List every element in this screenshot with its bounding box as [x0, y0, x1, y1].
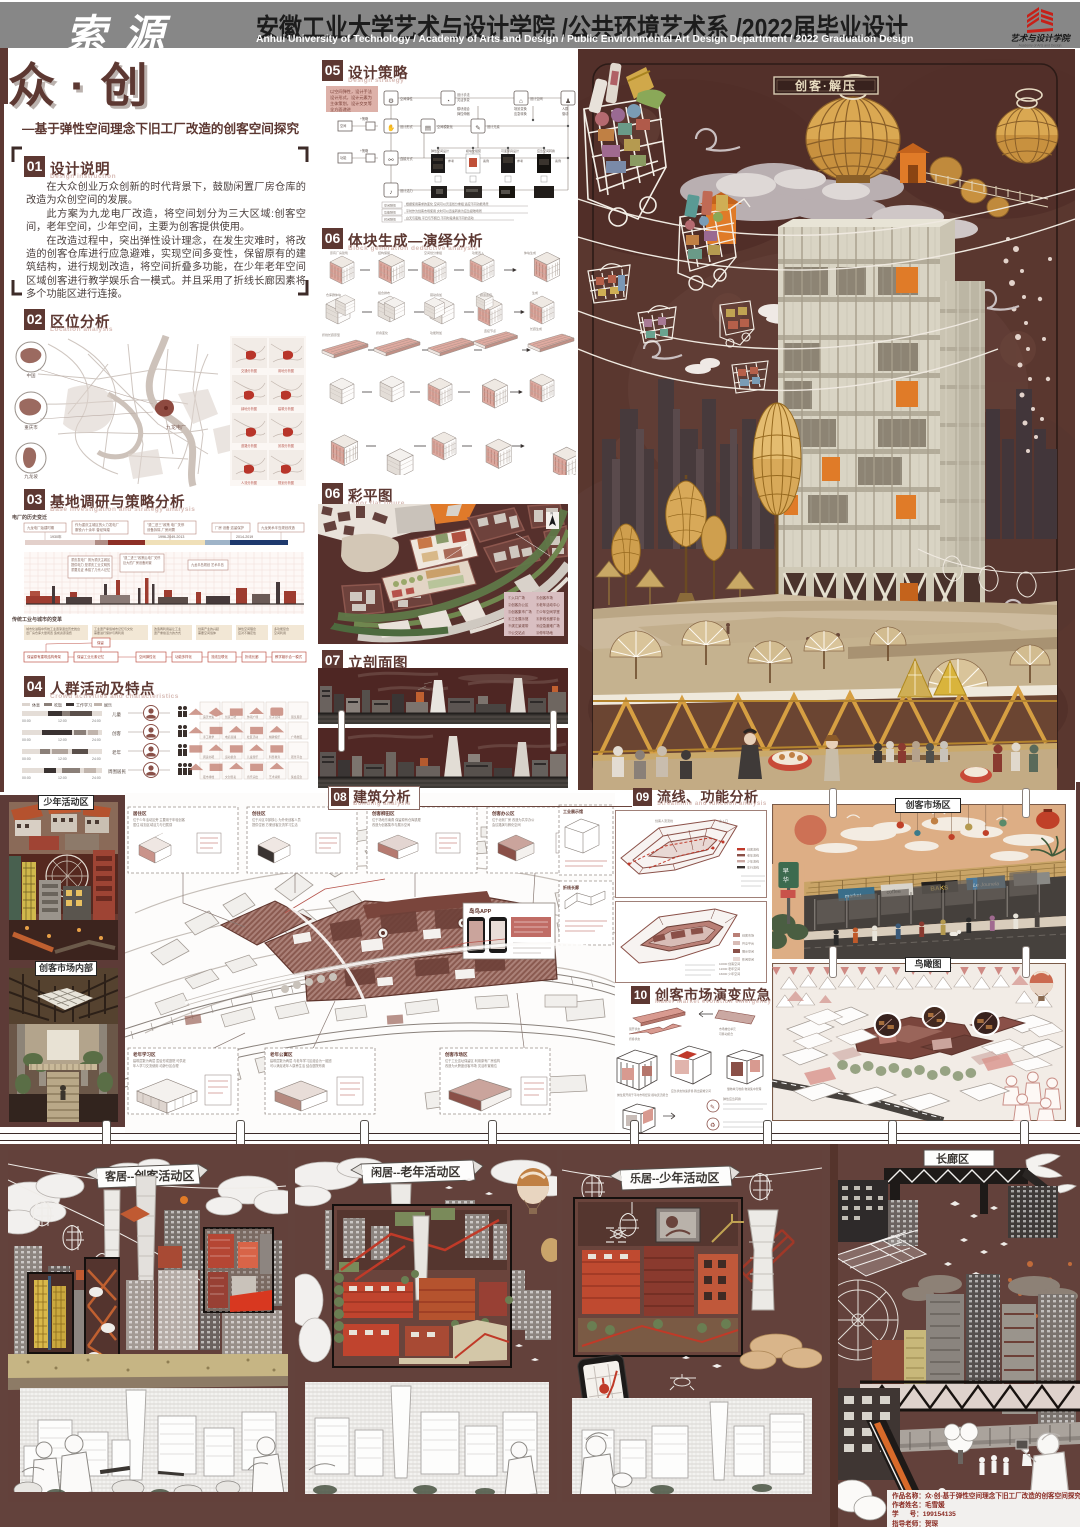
svg-text:艺术与设计学院: 艺术与设计学院 [1010, 33, 1071, 43]
svg-text:应急空间转换: 应急空间转换 [537, 148, 555, 153]
svg-text:休闲空间: 休闲空间 [742, 956, 754, 961]
svg-text:老年公寓区: 老年公寓区 [269, 1051, 293, 1058]
svg-text:空间弹性化: 空间弹性化 [139, 654, 157, 659]
svg-text:功能: 功能 [340, 155, 347, 160]
svg-text:吃饭: 吃饭 [54, 702, 62, 708]
svg-text:人流分析图: 人流分析图 [241, 480, 257, 485]
svg-text:主体策划，设计交叉等: 主体策划，设计交叉等 [330, 100, 372, 107]
svg-text:功能弹性: 功能弹性 [384, 210, 396, 215]
svg-text:需要进行保护与再利用: 需要进行保护与再利用 [94, 630, 124, 635]
svg-text:手工教学: 手工教学 [203, 735, 214, 739]
svg-text:生成: 生成 [532, 290, 538, 295]
svg-text:案例: 案例 [483, 158, 489, 163]
svg-text:露天市集: 露天市集 [203, 715, 214, 719]
svg-text:24:00: 24:00 [92, 738, 101, 742]
svg-text:16000 少年空间: 16000 少年空间 [719, 971, 740, 976]
svg-text:白天与夜晚 平日与节假日 不同时段承载不同的活动: 白天与夜晚 平日与节假日 不同时段承载不同的活动 [406, 215, 474, 220]
svg-text:"退二进三"政策后电厂关停: "退二进三"政策后电厂关停 [123, 555, 161, 560]
svg-text:功能置入: 功能置入 [472, 250, 484, 255]
svg-text:提供住宿 方便创客交流学习生活: 提供住宿 方便创客交流学习生活 [252, 822, 298, 827]
svg-text:华: 华 [783, 876, 789, 884]
svg-text:1930年: 1930年 [50, 534, 62, 539]
svg-text:电商直播: 电商直播 [225, 735, 236, 739]
svg-text:折叠变化: 折叠变化 [376, 330, 388, 335]
svg-text:12:00: 12:00 [58, 719, 67, 723]
svg-text:闲居--老年活动区: 闲居--老年活动区 [371, 1164, 460, 1179]
svg-text:✋: ✋ [387, 124, 395, 132]
svg-text:设计元素: 设计元素 [487, 124, 501, 129]
svg-text:24:00: 24:00 [92, 776, 101, 780]
svg-text:景观分析图: 景观分析图 [278, 443, 294, 448]
svg-text:重庆发电厂 曾为重庆主城区: 重庆发电厂 曾为重庆主城区 [71, 557, 111, 562]
svg-text:空间弹性: 空间弹性 [400, 96, 414, 101]
svg-text:折线长廊: 折线长廊 [245, 654, 259, 659]
svg-text:⑨滨江景观带: ⑨滨江景观带 [508, 623, 529, 628]
svg-text:12:00: 12:00 [58, 776, 67, 780]
svg-text:⑧折线长廊平台: ⑧折线长廊平台 [536, 616, 560, 621]
svg-text:⑪公交站点: ⑪公交站点 [508, 630, 526, 635]
svg-text:创客·解压: 创客·解压 [794, 78, 857, 93]
svg-text:重庆市: 重庆市 [24, 424, 38, 431]
svg-text:位于工业遗址保留区 利用原有厂房结构: 位于工业遗址保留区 利用原有厂房结构 [445, 1058, 500, 1063]
svg-text:③创客集市广场: ③创客集市广场 [508, 609, 532, 614]
svg-text:可移动组合: 可移动组合 [719, 1032, 733, 1036]
svg-text:休息: 休息 [32, 702, 40, 708]
svg-text:年人学习交流使用 动静分区合理: 年人学习交流使用 动静分区合理 [133, 1063, 179, 1068]
svg-text:⑦少年空间学堂: ⑦少年空间学堂 [536, 609, 560, 614]
svg-text:创客人流流线: 创客人流流线 [655, 818, 673, 823]
svg-text:00:00: 00:00 [22, 776, 31, 780]
svg-text:阅读书吧: 阅读书吧 [203, 755, 214, 759]
svg-text:可变家具设计: 可变家具设计 [501, 148, 519, 153]
svg-text:展示空间: 展示空间 [742, 948, 754, 953]
svg-text:居住 增加区域活力与归属感: 居住 增加区域活力与归属感 [133, 822, 173, 827]
svg-text:应对不确定性: 应对不确定性 [238, 630, 256, 635]
svg-text:结构保留: 结构保留 [378, 250, 390, 255]
svg-text:参考: 参考 [517, 158, 523, 163]
svg-text:创客办公区: 创客办公区 [491, 810, 515, 817]
svg-text:弹性应急转换: 弹性应急转换 [723, 1096, 741, 1101]
svg-text:⚙: ⚙ [388, 97, 394, 105]
svg-text:设计形式: 设计形式 [400, 124, 414, 129]
svg-text:+策略: +策略 [360, 116, 369, 121]
svg-text:▤: ▤ [425, 125, 431, 132]
svg-text:空间划分重组: 空间划分重组 [424, 250, 442, 255]
svg-text:旧厂房仓库大量闲置 造成资源浪费: 旧厂房仓库大量闲置 造成资源浪费 [26, 630, 72, 635]
svg-text:空间利用: 空间利用 [274, 630, 286, 635]
svg-text:折叠状态: 折叠状态 [629, 1037, 640, 1041]
svg-text:九龙坡: 九龙坡 [24, 473, 38, 480]
svg-text:亲子空间: 亲子空间 [269, 715, 280, 719]
svg-text:仓库群体块: 仓库群体块 [326, 292, 341, 297]
svg-text:保留原有建筑结构骨架: 保留原有建筑结构骨架 [27, 654, 62, 659]
svg-text:教学娱乐合一模式: 教学娱乐合一模式 [275, 654, 303, 659]
svg-text:①入口广场: ①入口广场 [508, 595, 526, 600]
svg-text:乐居--少年活动区: 乐居--少年活动区 [630, 1170, 719, 1185]
svg-text:模块组合: 模块组合 [457, 106, 471, 111]
svg-text:电厂的历史变迁: 电厂的历史变迁 [12, 514, 47, 521]
svg-text:⑩应急避难广场: ⑩应急避难广场 [536, 623, 560, 628]
svg-text:流线互联化: 流线互联化 [211, 654, 229, 659]
svg-text:工作学习: 工作学习 [76, 702, 92, 708]
svg-text:传统工业与城市的变革: 传统工业与城市的变革 [11, 616, 62, 623]
svg-text:功能附加: 功能附加 [430, 330, 442, 335]
svg-text:展开状态: 展开状态 [629, 1027, 640, 1031]
svg-text:场景变换: 场景变换 [514, 106, 528, 111]
svg-text:交通分析图: 交通分析图 [241, 368, 257, 373]
svg-text:"退二进三"政策 电厂关停: "退二进三"政策 电厂关停 [147, 522, 185, 527]
svg-text:长廊生成: 长廊生成 [530, 326, 542, 331]
svg-text:应急状态快速折叠 腾出避难空间: 应急状态快速折叠 腾出避难空间 [671, 1089, 711, 1093]
svg-text:案例: 案例 [555, 158, 561, 163]
svg-text:空间模数化: 空间模数化 [437, 124, 454, 129]
svg-text:设计形式，设计元素为: 设计形式，设计元素为 [330, 94, 372, 101]
svg-text:夜市排档: 夜市排档 [203, 775, 214, 779]
svg-text:12:00: 12:00 [58, 757, 67, 761]
svg-text:⑤创客市场: ⑤创客市场 [536, 595, 554, 600]
svg-text:科普教育: 科普教育 [269, 755, 280, 759]
svg-text:长廊区: 长廊区 [936, 1152, 969, 1166]
svg-text:体块生成: 体块生成 [524, 250, 536, 255]
svg-text:24:00: 24:00 [92, 757, 101, 761]
svg-text:位于少年活动区旁 主要用于年轻创客: 位于少年活动区旁 主要用于年轻创客 [133, 817, 186, 822]
svg-text:主入口: 主入口 [719, 818, 728, 823]
svg-text:改造为创客集市与展示空间: 改造为创客集市与展示空间 [372, 822, 410, 827]
svg-text:作为重庆主城区的火力发电厂: 作为重庆主城区的火力发电厂 [75, 522, 120, 527]
svg-text:规划分析图: 规划分析图 [278, 480, 294, 485]
svg-text:以空间弹性，设计手法: 以空间弹性，设计手法 [330, 88, 372, 95]
svg-text:休闲广场: 休闲广场 [247, 715, 258, 719]
svg-text:储物单元堆叠 物资集中管理: 储物单元堆叠 物资集中管理 [727, 1087, 762, 1091]
svg-text:工业展示馆: 工业展示馆 [563, 808, 583, 814]
svg-text:社区活动: 社区活动 [247, 735, 258, 739]
svg-text:全方面递进: 全方面递进 [330, 106, 352, 113]
svg-text:九龙电厂: 九龙电厂 [166, 424, 186, 431]
svg-text:⚯: ⚯ [388, 157, 394, 164]
svg-text:1996-2049-2013: 1996-2049-2013 [158, 535, 184, 539]
svg-text:④工业展示馆: ④工业展示馆 [508, 616, 529, 621]
svg-text:功能多样化: 功能多样化 [175, 654, 193, 659]
svg-text:运动健身: 运动健身 [225, 755, 236, 759]
svg-text:空间: 空间 [340, 123, 346, 128]
svg-text:空间弹性: 空间弹性 [384, 203, 396, 208]
svg-text:②创客办公区: ②创客办公区 [508, 602, 529, 607]
svg-text:厂房 设备 遗留保护: 厂房 设备 遗留保护 [215, 525, 245, 530]
svg-text:设备拆除 厂房闲置: 设备拆除 厂房闲置 [147, 527, 176, 532]
svg-text:组合排布: 组合排布 [378, 290, 390, 295]
svg-text:00:00: 00:00 [22, 719, 31, 723]
svg-text:共享平台: 共享平台 [742, 940, 754, 945]
svg-text:人群: 人群 [562, 106, 569, 111]
svg-text:周围居民: 周围居民 [108, 769, 126, 775]
svg-text:保留工业元素记忆: 保留工业元素记忆 [77, 654, 105, 659]
svg-text:建筑层数为两层 与老年学习区组合为一组团: 建筑层数为两层 与老年学习区组合为一组团 [270, 1058, 331, 1063]
svg-text:早: 早 [783, 868, 789, 875]
svg-text:位于片区中部核心 为外来创客人员: 位于片区中部核心 为外来创客人员 [252, 817, 301, 822]
svg-text:平时作为创客市场使用 灾时可以迅速转换为应急避难场所: 平时作为创客市场使用 灾时可以迅速转换为应急避难场所 [406, 208, 482, 213]
svg-text:集会应急: 集会应急 [291, 775, 302, 779]
svg-text:时间弹性: 时间弹性 [384, 217, 396, 222]
svg-text:文创售卖: 文创售卖 [225, 775, 236, 779]
svg-text:2014-2019: 2014-2019 [236, 535, 253, 539]
svg-text:绿地分析图: 绿地分析图 [241, 406, 257, 411]
svg-text:中国: 中国 [27, 372, 36, 379]
svg-text:会议路演与孵化空间: 会议路演与孵化空间 [492, 822, 521, 827]
svg-text:岛鸟APP: 岛鸟APP [469, 907, 492, 915]
svg-text:连接节点: 连接节点 [484, 328, 496, 333]
svg-text:+策略: +策略 [360, 148, 369, 153]
svg-text:重要见证 承载了几代人记忆: 重要见证 承载了几代人记忆 [71, 567, 111, 572]
svg-text:用地分析图: 用地分析图 [278, 368, 294, 373]
svg-text:♻: ♻ [710, 1122, 715, 1129]
svg-text:错动叠加: 错动叠加 [430, 292, 442, 297]
svg-text:保留: 保留 [97, 640, 104, 645]
svg-text:24:00: 24:00 [92, 719, 101, 723]
svg-text:♪: ♪ [389, 189, 392, 196]
svg-text:九龙半岛规划 艺术半岛: 九龙半岛规划 艺术半岛 [191, 562, 224, 567]
svg-text:⑥老年活动中心: ⑥老年活动中心 [536, 602, 560, 607]
svg-text:创客市场区: 创客市场区 [444, 1051, 468, 1058]
svg-text:老年: 老年 [112, 749, 121, 756]
svg-text:可以满足老年人康养生活 结合庭院布置: 可以满足老年人康养生活 结合庭院布置 [270, 1063, 325, 1068]
svg-text:00:00: 00:00 [22, 738, 31, 742]
svg-text:驱动: 驱动 [562, 111, 568, 116]
svg-text:⑫停车场地: ⑫停车场地 [536, 630, 554, 635]
svg-text:老年学习区: 老年学习区 [132, 1051, 156, 1058]
svg-text:展览展示: 展览展示 [291, 715, 302, 719]
svg-text:廊道连接: 廊道连接 [480, 292, 492, 297]
svg-text:九龙美术半岛规划改造: 九龙美术半岛规划改造 [261, 525, 296, 530]
svg-text:◔: ◔ [446, 98, 450, 105]
svg-text:棋牌娱乐: 棋牌娱乐 [269, 735, 280, 739]
svg-text:儿童: 儿童 [112, 711, 121, 718]
svg-text:居住区: 居住区 [133, 810, 147, 817]
svg-text:市场摊位单元: 市场摊位单元 [719, 1027, 736, 1031]
svg-text:Academy of Arts and Design: Academy of Arts and Design [1019, 44, 1062, 48]
svg-text:创客柳田区: 创客柳田区 [371, 810, 395, 817]
svg-text:00:00: 00:00 [22, 757, 31, 761]
svg-text:设计活力: 设计活力 [400, 188, 413, 193]
svg-text:创客流线: 创客流线 [747, 847, 759, 852]
svg-text:创住区: 创住区 [251, 810, 266, 817]
svg-text:观景平台: 观景平台 [291, 755, 302, 759]
svg-text:巨大的厂房设备闲置: 巨大的厂房设备闲置 [123, 560, 152, 565]
svg-text:音乐演出: 音乐演出 [247, 775, 258, 779]
svg-text:位于场地东南角 保留原有仓库肌理: 位于场地东南角 保留原有仓库肌理 [372, 817, 422, 822]
svg-text:连接方式: 连接方式 [400, 156, 414, 161]
svg-text:提供电力 是重庆工业文明的: 提供电力 是重庆工业文明的 [71, 562, 110, 567]
svg-text:模块化组装: 模块化组装 [466, 148, 481, 153]
svg-text:服役六十余年 曾经辉煌: 服役六十余年 曾经辉煌 [75, 527, 110, 532]
svg-text:儿童游乐: 儿童游乐 [247, 755, 258, 759]
svg-text:创意工坊: 创意工坊 [225, 715, 236, 719]
svg-text:根据使用需求的变化 空间可以灵活划分重组 适应不同功能场景: 根据使用需求的变化 空间可以灵活划分重组 适应不同功能场景 [406, 201, 489, 206]
svg-text:创客市场: 创客市场 [742, 932, 754, 937]
svg-text:九龙电厂始建时期: 九龙电厂始建时期 [27, 525, 55, 530]
svg-text:⌂: ⌂ [519, 98, 523, 105]
svg-text:弹性空间设计: 弹性空间设计 [431, 148, 449, 153]
svg-text:位于北侧厂房 改造为共享办公: 位于北侧厂房 改造为共享办公 [492, 817, 535, 822]
svg-text:建筑分析图: 建筑分析图 [278, 406, 294, 411]
svg-text:✎: ✎ [475, 125, 481, 132]
svg-text:摊位展开用于平时市场经营 模块灵活组合: 摊位展开用于平时市场经营 模块灵活组合 [617, 1093, 668, 1097]
svg-text:艺术涂鸦: 艺术涂鸦 [269, 775, 280, 779]
svg-text:✎: ✎ [710, 1104, 715, 1111]
svg-text:创客: 创客 [112, 730, 121, 737]
svg-text:♟: ♟ [565, 97, 571, 105]
svg-text:12000 老年空间: 12000 老年空间 [719, 966, 740, 971]
svg-text:设计手法: 设计手法 [457, 92, 470, 97]
svg-text:弹性伸缩: 弹性伸缩 [457, 111, 471, 116]
svg-text:少年流线: 少年流线 [747, 859, 759, 864]
svg-text:灵活多变: 灵活多变 [457, 97, 471, 102]
svg-text:车行流线: 车行流线 [747, 865, 759, 870]
svg-text:应急转换: 应急转换 [514, 111, 528, 116]
svg-text:折线长廊: 折线长廊 [563, 884, 579, 890]
svg-text:娱乐: 娱乐 [104, 702, 112, 708]
svg-text:12:00: 12:00 [58, 738, 67, 742]
svg-text:原有厂房建筑: 原有厂房建筑 [330, 250, 348, 255]
svg-text:老年流线: 老年流线 [747, 853, 759, 858]
svg-text:道路分析图: 道路分析图 [241, 443, 257, 448]
svg-text:折线长廊原型: 折线长廊原型 [322, 332, 340, 337]
svg-text:改造为大跨度创客市场 灵活布置摊位: 改造为大跨度创客市场 灵活布置摊位 [445, 1063, 498, 1068]
svg-text:10000 创客空间: 10000 创客空间 [719, 961, 740, 966]
svg-text:建筑层数为两层 围合形成庭院 可供老: 建筑层数为两层 围合形成庭院 可供老 [133, 1058, 187, 1063]
svg-text:参考: 参考 [448, 158, 454, 163]
svg-text:广场舞区: 广场舞区 [291, 735, 302, 739]
svg-text:遗产重焕活力的方式: 遗产重焕活力的方式 [154, 630, 181, 635]
svg-text:需要空间载体: 需要空间载体 [198, 630, 216, 635]
svg-text:设计空间: 设计空间 [530, 96, 543, 101]
